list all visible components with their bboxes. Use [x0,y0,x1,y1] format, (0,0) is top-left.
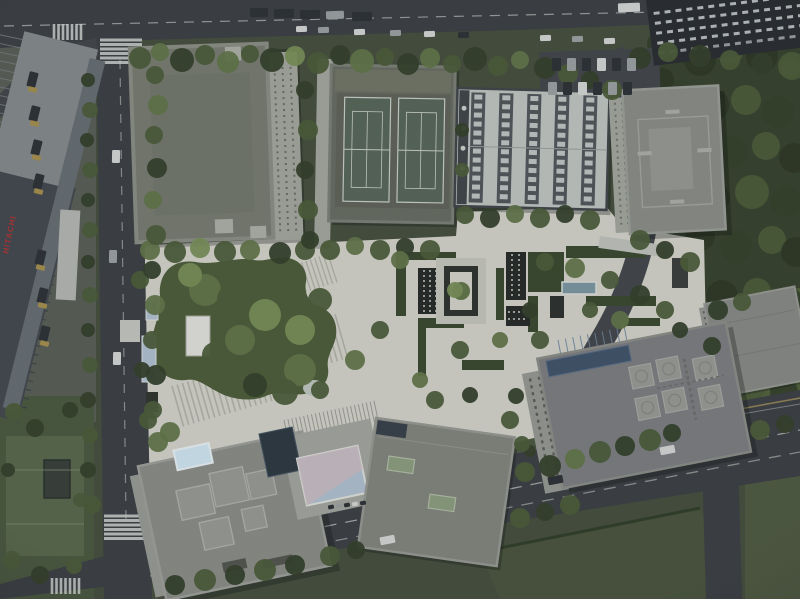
vehicle [112,150,120,163]
square [662,387,688,413]
campus-tree [456,206,474,224]
campus-tree [536,253,554,271]
street-tree [463,47,487,71]
campus-tree [601,271,619,289]
campus-tree [214,241,236,263]
teal-skylight [562,282,596,294]
street-tree [780,58,800,78]
vehicle [540,35,551,41]
street-tree [689,45,711,67]
vehicle [250,8,268,18]
campus-tree [580,210,600,230]
street-tree [82,162,98,178]
aerial-photo: HITACHI [0,0,800,599]
street-tree [560,495,580,515]
vehicle [578,82,587,95]
street-tree [750,420,770,440]
street-tree [146,225,166,245]
roof-inset [150,72,255,215]
street-tree [508,388,524,404]
vehicle [563,82,572,95]
vehicle [300,10,320,20]
campus-tree [455,123,469,137]
street-tree [536,503,554,521]
street-tree [80,462,96,478]
square [656,356,682,382]
street-tree [751,53,773,75]
street-tree [350,49,374,73]
pattern-square [635,395,661,421]
street-tree [143,331,161,349]
street-tree [148,432,168,452]
street-tree [147,158,167,178]
vehicle [354,29,365,35]
street-tree [144,401,162,419]
vehicle [296,26,307,32]
campus-tree [298,120,318,140]
campus-tree [26,419,44,437]
street-tree [285,555,305,575]
street-tree [397,53,419,75]
vehicle [424,31,435,37]
street-tree [241,45,259,63]
vehicle [326,11,344,20]
campus-tree [565,258,585,278]
park-court [44,460,70,498]
campus-tree [611,311,629,329]
vehicle [593,82,602,95]
vehicle [567,58,576,71]
campus-tree [256,336,284,364]
street-tree [488,56,508,76]
campus-tree [522,302,538,318]
campus-tree [225,325,255,355]
campus-tree [296,81,314,99]
roof-panel [241,505,267,531]
campus-tree [680,252,700,272]
street-tree [510,508,530,528]
vehicle [597,58,606,71]
street-tree [254,559,276,581]
street-tree [83,496,101,514]
dark-pavilion [550,296,564,318]
square [635,395,661,421]
campus-tree [582,302,598,318]
vehicle [552,58,561,71]
campus-tree [5,403,23,421]
campus-tree [447,282,463,298]
vehicle [390,30,401,36]
street-tree [195,45,215,65]
street-tree [217,51,239,73]
vehicle [458,32,469,38]
campus-tree [346,237,364,255]
street-tree [776,415,794,433]
street-tree [514,436,530,452]
campus-tree [320,240,340,260]
roof-panel [176,484,215,520]
campus-tree [630,230,650,250]
street-tree [145,126,163,144]
street-tree [148,95,168,115]
campus-tree [178,263,202,287]
roof-mark [670,199,684,204]
roof-pattern [648,127,693,191]
street-tree [443,55,461,73]
street-tree [146,365,166,385]
street-tree [376,48,394,66]
street-tree [82,427,98,443]
square [629,363,655,389]
campus-tree [269,242,291,264]
vehicle [274,9,294,19]
campus-tree [426,391,444,409]
street-tree [144,191,162,209]
campus-tree [240,240,260,260]
campus-tree [164,241,186,263]
campus-tree [412,372,428,388]
street-tree [151,43,169,61]
campus-tree [492,332,508,348]
campus-tree [272,379,298,405]
tennis-court [397,98,445,203]
building-skylight-hall [454,88,613,215]
street-tree [720,50,740,70]
street-tree [82,357,98,373]
stripe-band [54,24,81,40]
street-tree [420,48,440,68]
roof-mark [638,151,652,156]
street-tree [330,45,350,65]
pattern-square [692,355,718,381]
campus-tree [301,231,319,249]
street-tree [80,133,94,147]
vehicle [572,36,583,42]
street-tree [81,193,95,207]
vehicle [623,82,632,95]
campus-tree [708,300,728,320]
street-tree [170,48,194,72]
vehicle [352,12,372,22]
street-tree [615,436,635,456]
roof-hatch [215,219,233,234]
building-northeast [608,85,732,241]
campus-tree [656,241,674,259]
street-tree [146,66,164,84]
campus-tree [217,282,253,318]
square [698,384,724,410]
campus-tree [1,463,15,477]
bus-shelter [120,320,140,342]
campus-tree [531,331,549,349]
campus-tree [345,350,365,370]
campus-tree [480,208,500,228]
pattern-square [656,356,682,382]
forest-tree [762,96,794,128]
street-tree [260,48,284,72]
campus-tree [66,558,82,574]
street-tree [143,261,161,279]
campus-tree [296,161,314,179]
campus-tree [630,285,650,305]
campus-tree [703,337,721,355]
roof-mark [697,148,711,153]
campus-tree [243,373,267,397]
aerial-scene: HITACHI [0,0,800,599]
street-tree [539,455,561,477]
street-tree [639,429,661,451]
roof-panel [199,517,234,551]
vehicle [612,58,621,71]
vehicle [627,58,636,71]
vehicle [618,3,640,13]
street-tree [194,569,216,591]
campus-tree [190,238,210,258]
building-south-center [357,418,518,571]
roof-mark [665,109,679,114]
campus-tree [733,293,751,311]
campus-tree [249,299,281,331]
forest-tree [735,175,769,209]
campus-tree [556,205,574,223]
vehicle [548,82,557,95]
street-tree [225,565,245,585]
green-skylight [428,494,456,511]
hedge [462,360,504,370]
forest-tree [771,187,800,217]
street-tree [589,441,611,463]
street-tree [320,546,340,566]
vehicle [109,250,117,263]
street-tree [658,42,678,62]
square [692,355,718,381]
roof-hatch [250,226,266,239]
street-tree [307,52,329,74]
street-tree [129,47,151,69]
street-tree [165,575,185,595]
campus-tree [31,566,49,584]
pattern-square [662,387,688,413]
campus-tree [656,301,674,319]
forest-tree [752,132,780,160]
campus-tree [420,240,440,260]
campus-tree [285,315,315,345]
campus-tree [202,342,228,368]
roof-strip [335,69,451,93]
hedge [496,268,504,320]
street-tree [145,295,165,315]
building-tennis-roof [314,59,459,251]
campus-tree [451,341,469,359]
street-tree [81,255,95,269]
street-tree [663,424,681,442]
street-tree [82,102,98,118]
campus-tree [298,200,318,220]
vehicle [604,38,615,44]
street-tree [82,287,98,303]
campus-tree [308,288,332,312]
campus-tree [672,322,688,338]
vehicle [113,352,121,365]
branch-road [702,452,742,599]
campus-tree [506,205,524,223]
stripe-band [52,578,79,594]
vehicle [318,27,329,33]
vehicle [582,58,591,71]
campus-tree [3,551,21,569]
slat-court [506,252,526,300]
vehicle [608,82,617,95]
roof-panel [209,467,249,507]
campus-tree [530,208,550,228]
campus-tree [370,240,390,260]
pattern-square [629,363,655,389]
street-tree [347,541,365,559]
campus-tree [462,387,478,403]
forest-tree [731,85,761,115]
campus-tree [391,251,409,269]
street-tree [565,449,585,469]
campus-tree [455,163,469,177]
tennis-court [343,97,391,202]
green-skylight [387,456,415,473]
street-tree [82,222,98,238]
street-tree [80,392,96,408]
street-tree [285,46,305,66]
hedge [418,318,426,376]
campus-tree [311,381,329,399]
campus-tree [371,321,389,339]
street-tree [511,51,529,69]
street-tree [515,462,535,482]
street-tree [81,73,95,87]
street-tree [501,411,519,429]
street-tree [81,323,95,337]
pattern-square [698,384,724,410]
campus-tree [62,402,78,418]
